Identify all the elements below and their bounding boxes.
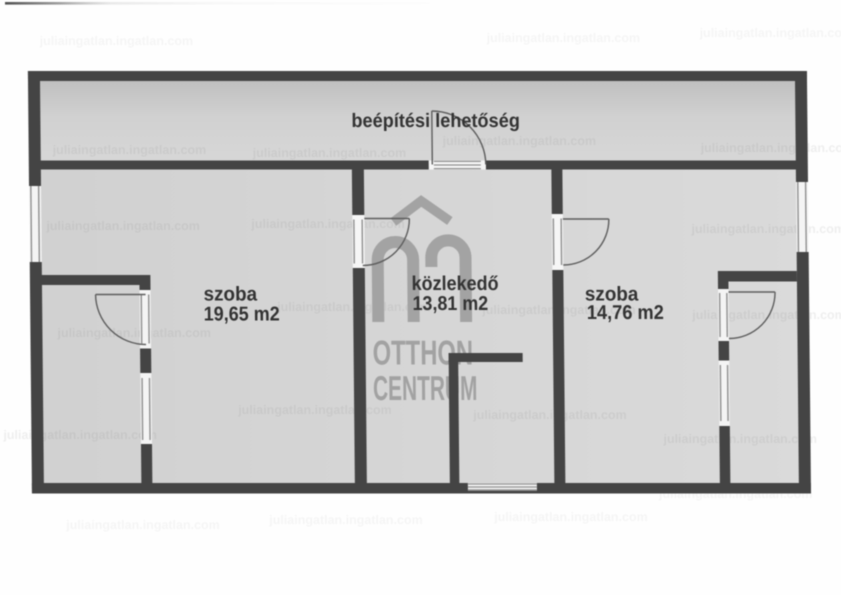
- svg-text:13,81 m2: 13,81 m2: [412, 293, 488, 315]
- svg-text:14,76 m2: 14,76 m2: [587, 302, 664, 324]
- svg-text:juliaingatlan.ingatlan.com: juliaingatlan.ingatlan.com: [237, 403, 392, 417]
- svg-text:juliaingatlan.ingatlan.com: juliaingatlan.ingatlan.com: [690, 222, 841, 236]
- svg-text:juliaingatlan.ingatlan.com: juliaingatlan.ingatlan.com: [662, 432, 817, 446]
- svg-text:juliaingatlan.ingatlan.com: juliaingatlan.ingatlan.com: [442, 134, 597, 148]
- svg-text:juliaingatlan.ingatlan.com: juliaingatlan.ingatlan.com: [2, 428, 157, 442]
- svg-text:szoba: szoba: [203, 283, 258, 305]
- svg-text:CENTRUM: CENTRUM: [373, 370, 478, 408]
- svg-text:19,65 m2: 19,65 m2: [204, 303, 280, 325]
- svg-text:juliaingatlan.ingatlan.com: juliaingatlan.ingatlan.com: [65, 518, 220, 532]
- svg-text:juliaingatlan.ingatlan.com: juliaingatlan.ingatlan.com: [52, 143, 207, 157]
- svg-text:juliaingatlan.ingatlan.com: juliaingatlan.ingatlan.com: [700, 141, 841, 155]
- svg-text:juliaingatlan.ingatlan.com: juliaingatlan.ingatlan.com: [493, 510, 648, 524]
- svg-text:juliaingatlan.ingatlan.com: juliaingatlan.ingatlan.com: [472, 408, 627, 422]
- svg-text:juliaingatlan.ingatlan.com: juliaingatlan.ingatlan.com: [486, 31, 641, 45]
- svg-text:juliaingatlan.ingatlan.com: juliaingatlan.ingatlan.com: [268, 513, 423, 527]
- svg-text:juliaingatlan.ingatlan.com: juliaingatlan.ingatlan.com: [56, 326, 211, 340]
- svg-text:közlekedő: közlekedő: [411, 273, 498, 295]
- svg-text:juliaingatlan.ingatlan.com: juliaingatlan.ingatlan.com: [39, 34, 194, 48]
- svg-text:juliaingatlan.ingatlan.com: juliaingatlan.ingatlan.com: [698, 26, 841, 40]
- svg-text:beépítési lehetőség: beépítési lehetőség: [351, 110, 520, 132]
- svg-text:juliaingatlan.ingatlan.com: juliaingatlan.ingatlan.com: [252, 146, 407, 160]
- svg-text:juliaingatlan.ingatlan.com: juliaingatlan.ingatlan.com: [45, 219, 200, 233]
